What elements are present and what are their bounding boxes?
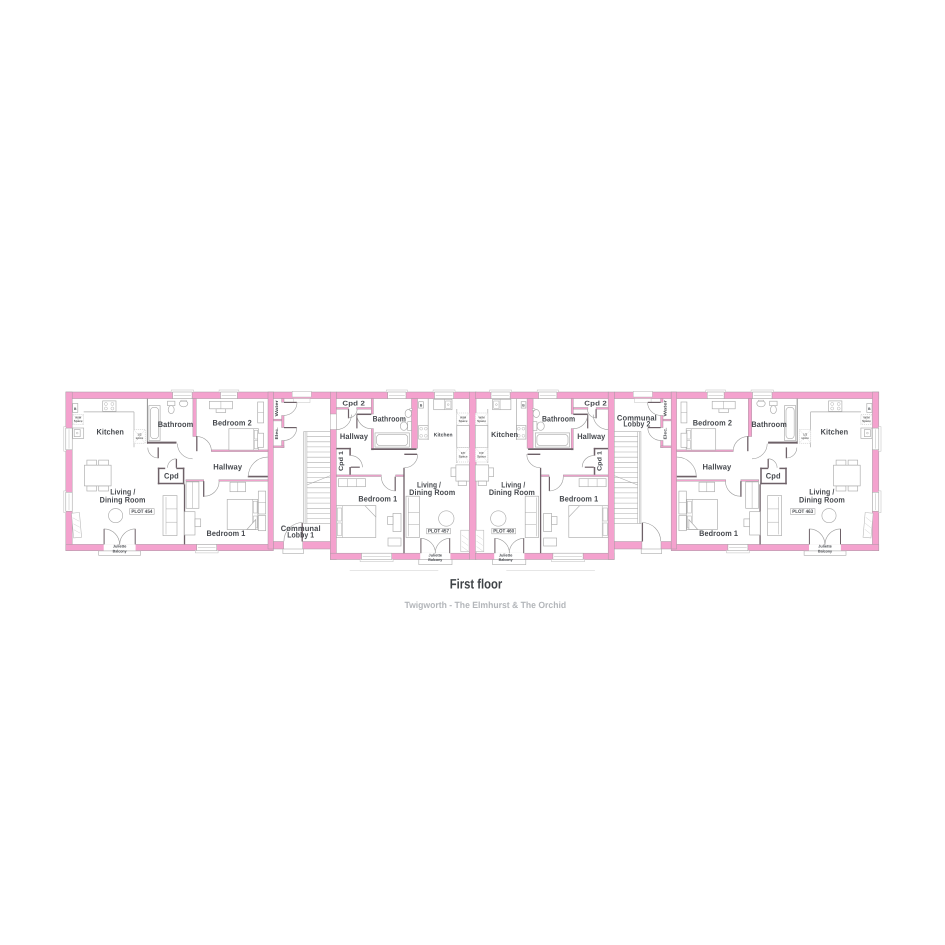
svg-text:spice: spice — [136, 436, 144, 440]
svg-text:Bedroom 2: Bedroom 2 — [213, 419, 253, 428]
svg-text:PLOT 460: PLOT 460 — [493, 529, 514, 535]
svg-text:Space: Space — [459, 455, 468, 459]
svg-text:Lobby 2: Lobby 2 — [623, 420, 650, 429]
svg-text:Cpd 1: Cpd 1 — [597, 450, 604, 471]
svg-text:First floor: First floor — [450, 576, 503, 591]
svg-text:Dining Room: Dining Room — [799, 495, 845, 504]
svg-text:Bathroom: Bathroom — [158, 420, 194, 429]
svg-text:Bedroom 1: Bedroom 1 — [699, 529, 738, 538]
svg-text:PLOT 457: PLOT 457 — [428, 529, 449, 535]
svg-text:Bathroom: Bathroom — [373, 415, 406, 424]
svg-text:Kitchen: Kitchen — [821, 427, 849, 436]
svg-text:Water: Water — [274, 400, 279, 417]
svg-text:Balcony: Balcony — [818, 548, 833, 553]
svg-text:Hallway: Hallway — [577, 432, 606, 441]
svg-text:Elec.: Elec. — [663, 428, 668, 440]
svg-text:Dining Room: Dining Room — [489, 488, 535, 497]
svg-text:Twigworth - The Elmhurst & The: Twigworth - The Elmhurst & The Orchid — [404, 600, 566, 610]
svg-text:Cpd 1: Cpd 1 — [338, 450, 345, 471]
svg-text:Cpd 2: Cpd 2 — [342, 400, 365, 407]
svg-text:Elec.: Elec. — [274, 428, 279, 440]
svg-text:Balcony: Balcony — [499, 557, 514, 562]
svg-text:Bedroom 1: Bedroom 1 — [559, 494, 598, 503]
svg-text:Balcony: Balcony — [428, 557, 443, 562]
svg-text:PLOT 463: PLOT 463 — [792, 509, 813, 515]
svg-text:Bedroom 1: Bedroom 1 — [207, 529, 246, 538]
svg-text:Cpd: Cpd — [766, 471, 781, 480]
svg-text:PLOT 454: PLOT 454 — [131, 509, 152, 515]
svg-text:spice: spice — [801, 436, 809, 440]
svg-text:Dining Room: Dining Room — [409, 488, 455, 497]
svg-text:Space: Space — [862, 419, 871, 423]
svg-text:Kitchen: Kitchen — [434, 432, 453, 438]
svg-text:Cpd: Cpd — [164, 471, 179, 480]
svg-text:Space: Space — [459, 419, 468, 423]
svg-text:Balcony: Balcony — [113, 548, 128, 553]
svg-text:Bedroom 2: Bedroom 2 — [693, 419, 733, 428]
svg-text:Water: Water — [663, 400, 668, 417]
svg-text:Kitchen: Kitchen — [96, 427, 124, 436]
svg-text:Space: Space — [477, 455, 486, 459]
svg-text:Hallway: Hallway — [702, 462, 731, 471]
svg-text:Hallway: Hallway — [213, 462, 242, 471]
svg-text:Space: Space — [477, 419, 486, 423]
svg-text:Cpd 2: Cpd 2 — [584, 400, 607, 407]
svg-text:Kitchen: Kitchen — [491, 430, 518, 439]
svg-text:Bathroom: Bathroom — [542, 415, 575, 424]
svg-text:Space: Space — [74, 419, 83, 423]
svg-text:Bathroom: Bathroom — [751, 420, 787, 429]
svg-text:Lobby 1: Lobby 1 — [287, 530, 314, 539]
svg-text:Dining Room: Dining Room — [100, 495, 146, 504]
svg-text:Hallway: Hallway — [340, 432, 369, 441]
svg-text:Bedroom 1: Bedroom 1 — [358, 494, 397, 503]
